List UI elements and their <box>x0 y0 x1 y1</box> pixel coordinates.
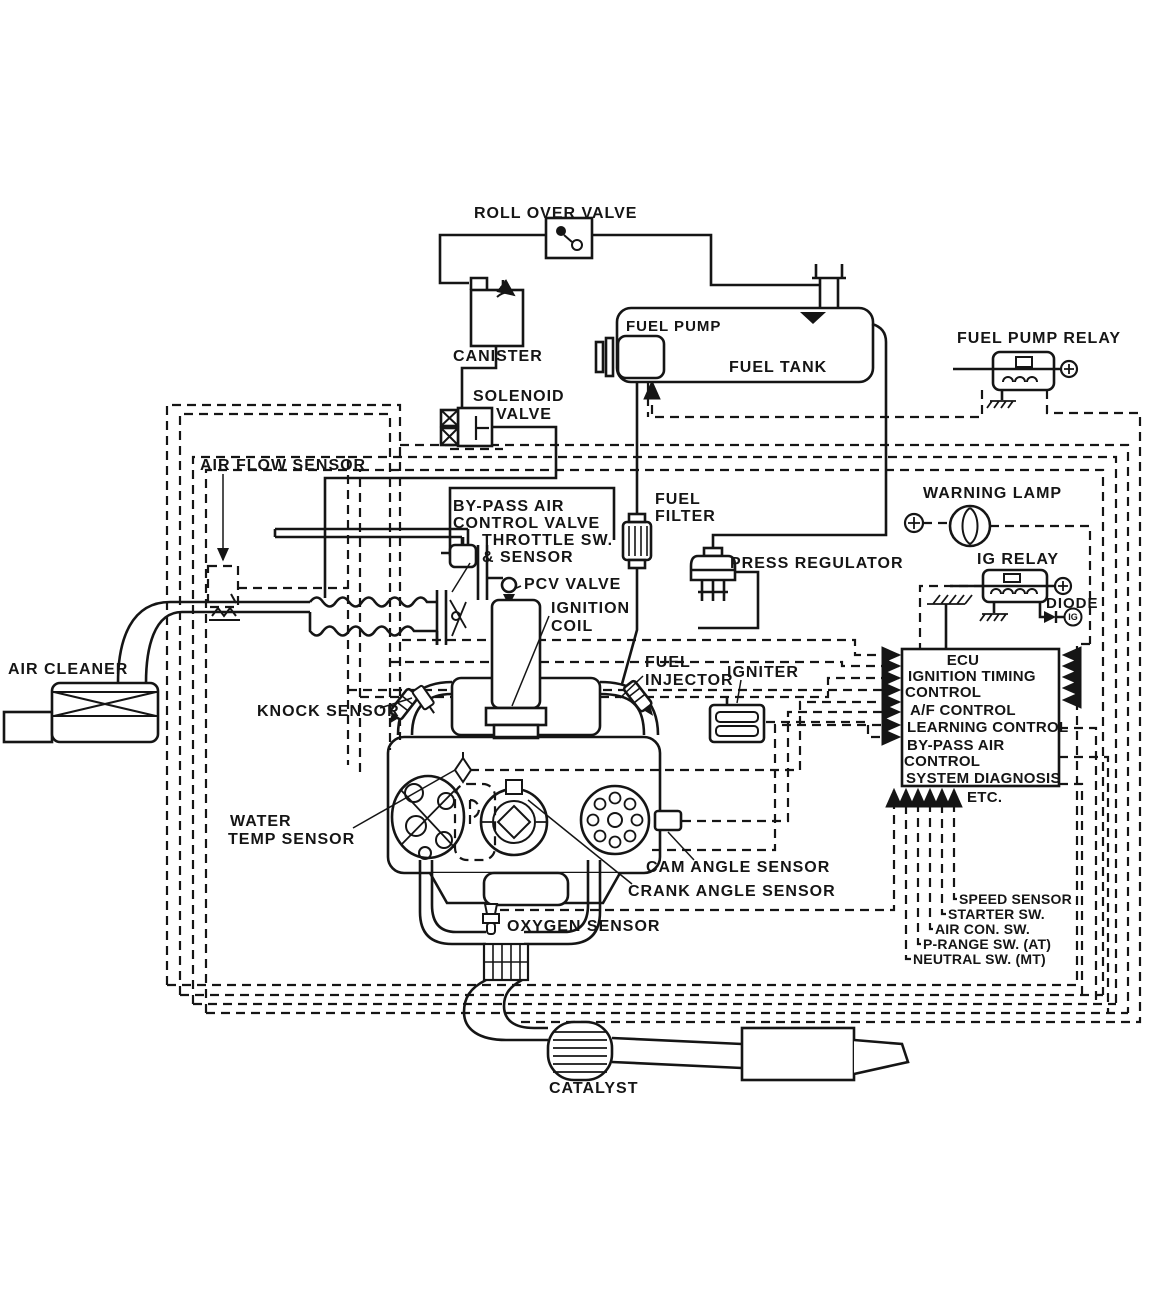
label-air-flow-sensor: AIR FLOW SENSOR <box>200 457 366 474</box>
label-ecu-line7: CONTROL <box>904 753 980 770</box>
air-cleaner-snout <box>4 712 52 742</box>
label-aircon-sw: AIR CON. SW. <box>935 921 1030 937</box>
label-catalyst: CATALYST <box>549 1080 638 1097</box>
label-oxygen: OXYGEN SENSOR <box>507 918 660 935</box>
cam-angle-sensor-body <box>655 811 681 830</box>
label-cam-angle: CAM ANGLE SENSOR <box>646 859 830 876</box>
crank-sensor-stub <box>506 780 522 794</box>
downpipe <box>464 980 548 1040</box>
wire-ecu-exit-2 <box>1059 757 1108 1013</box>
label-water-1: WATER <box>230 813 292 830</box>
label-ignition-2: COIL <box>551 618 593 635</box>
label-warning-lamp: WARNING LAMP <box>923 485 1062 502</box>
bypass-valve-body <box>450 545 476 567</box>
wire-starter-sw <box>942 790 946 914</box>
canister-stub <box>471 278 503 290</box>
leader-igniter <box>737 680 741 703</box>
ecu-ground <box>927 595 972 604</box>
rollover-valve-body <box>546 218 592 258</box>
engine-control-diagram: ROLL OVER VALVE CANISTER SOLENOID VALVE … <box>0 0 1152 1295</box>
tailpipe <box>854 1040 908 1074</box>
cam-gear-outer <box>581 786 649 854</box>
label-air-cleaner: AIR CLEANER <box>8 661 128 678</box>
wire-neutral-sw <box>906 790 911 959</box>
fuel-pump-cap2 <box>596 342 603 372</box>
label-ecu-line4: A/F CONTROL <box>910 702 1016 719</box>
fuel-pump-cap1 <box>606 338 613 376</box>
label-ig-relay: IG RELAY <box>977 551 1059 568</box>
label-diode: DIODE <box>1046 595 1099 612</box>
label-ecu-title: ECU <box>947 652 980 669</box>
label-fuel-injector-2: INJECTOR <box>645 672 734 689</box>
coil-base-1 <box>486 708 546 725</box>
leader-water-temp <box>353 770 455 828</box>
wire-ecu-exit-3 <box>1059 784 1082 995</box>
label-ignition-1: IGNITION <box>551 600 630 617</box>
label-press-regulator: PRESS REGULATOR <box>730 555 904 572</box>
ig-relay-ground <box>980 614 1008 621</box>
label-fuel-pump-relay: FUEL PUMP RELAY <box>957 330 1121 347</box>
label-pcv-valve: PCV VALVE <box>524 576 621 593</box>
label-crank-angle: CRANK ANGLE SENSOR <box>628 883 836 900</box>
wire-ecu-left-1 <box>402 640 899 655</box>
wire-prange-sw <box>918 790 921 944</box>
label-bypass-3: THROTTLE SW. <box>482 532 613 549</box>
muffler-body <box>742 1028 854 1080</box>
label-fuel-filter-1: FUEL <box>655 491 701 508</box>
afs-hatch <box>209 608 240 620</box>
label-ecu-line9: ETC. <box>967 789 1002 806</box>
wire-ig-relay <box>920 586 983 649</box>
canister-body <box>471 290 523 346</box>
label-bypass-1: BY-PASS AIR <box>453 498 564 515</box>
label-solenoid-2: VALVE <box>496 406 552 423</box>
wire-crank-sensor <box>652 725 899 850</box>
engine-center-dashed-p <box>470 800 479 830</box>
label-ecu-line3: CONTROL <box>905 684 981 701</box>
label-fuel-pump: FUEL PUMP <box>626 318 721 335</box>
label-solenoid-1: SOLENOID <box>473 388 565 405</box>
wire-speed-sensor <box>954 790 957 899</box>
rollover-line-right <box>592 235 820 285</box>
wire-nest-left-4 <box>206 470 360 1013</box>
label-speed-sensor: SPEED SENSOR <box>959 891 1072 907</box>
crank-diamond <box>498 806 530 838</box>
label-ecu-line6: BY-PASS AIR <box>907 737 1004 754</box>
label-fuel-tank: FUEL TANK <box>729 359 827 376</box>
label-bypass-4: & SENSOR <box>482 549 574 566</box>
plenum-top <box>275 529 468 537</box>
wire-aircon-sw <box>930 790 933 929</box>
regulator-body <box>691 556 735 580</box>
label-ecu-line8: SYSTEM DIAGNOSIS <box>906 770 1061 787</box>
label-canister: CANISTER <box>453 348 543 365</box>
wire-fp-relay-left <box>652 382 982 417</box>
regulator-prongs <box>698 580 728 601</box>
label-fuel-injector-1: FUEL <box>645 654 691 671</box>
mid-pipe <box>612 1038 742 1068</box>
diagram-canvas: ROLL OVER VALVE CANISTER SOLENOID VALVE … <box>0 0 1152 1295</box>
label-starter-sw: STARTER SW. <box>948 906 1045 922</box>
throttle-flange <box>437 590 446 645</box>
oxygen-sensor-body <box>483 904 499 934</box>
wire-ecu-right-stub <box>1077 644 1090 705</box>
rollover-line-left <box>440 235 546 283</box>
label-ecu-line2: IGNITION TIMING <box>908 668 1036 685</box>
label-ecu-line5: LEARNING CONTROL <box>907 719 1068 736</box>
label-prange-sw: P-RANGE SW. (AT) <box>923 936 1051 952</box>
label-bypass-2: CONTROL VALVE <box>453 515 600 532</box>
water-temp-sensor <box>455 752 471 782</box>
fp-relay-ground <box>987 401 1016 408</box>
leader-cam-angle <box>668 832 694 860</box>
label-ig-terminal: IG <box>1068 612 1078 622</box>
label-fuel-filter-2: FILTER <box>655 508 716 525</box>
label-igniter: IGNITER <box>727 664 799 681</box>
label-roll-over-valve: ROLL OVER VALVE <box>474 205 637 222</box>
warning-lamp-bulb <box>950 506 990 546</box>
label-water-2: TEMP SENSOR <box>228 831 355 848</box>
label-knock-sensor: KNOCK SENSOR <box>257 703 400 720</box>
diode-symbol <box>1044 611 1056 623</box>
filter-to-injector <box>622 568 637 684</box>
intake-hose-corrugated-top <box>310 598 437 607</box>
label-neutral-sw: NEUTRAL SW. (MT) <box>913 951 1046 967</box>
pcv-valve-ball <box>502 578 516 592</box>
wire-nest-left-1 <box>167 405 400 985</box>
fuel-pump-body <box>618 336 664 378</box>
